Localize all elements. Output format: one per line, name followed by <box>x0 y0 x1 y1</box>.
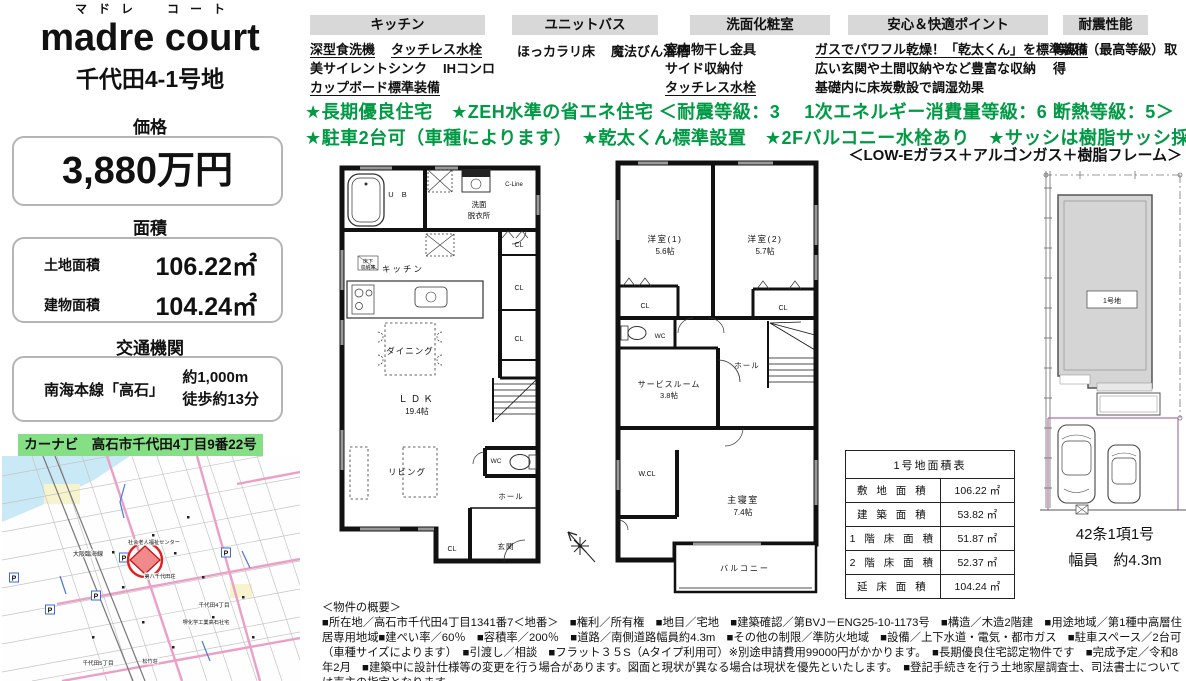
site-road-width: 幅員 約4.3m <box>1040 548 1186 574</box>
plan1-washroom-label: 洗面 <box>472 199 487 209</box>
parking-icon: P <box>94 594 99 601</box>
plan1-closet-label: CL <box>448 546 457 553</box>
floorplan-1f: U B 洗面 脱衣所 C-Line CL CL CL キッチン 床下 収納庫 Ｌ… <box>330 160 545 572</box>
plan2-room1-size: 5.6帖 <box>655 246 674 256</box>
row-name: 1 階 床 面 積 <box>846 527 941 551</box>
plan1-outer-wall <box>342 168 538 561</box>
land-area-row: 土地面積 106.22㎡ <box>14 239 281 283</box>
parking-icon: P <box>48 608 53 615</box>
plan1-washroom-label: 脱衣所 <box>468 210 491 220</box>
feature-item: 室内物干し金具 <box>665 40 756 59</box>
plan2-wc-label: WC <box>655 333 666 340</box>
area-heading: 面積 <box>0 214 300 239</box>
feature-item: 美サイレントシンク <box>310 59 427 78</box>
map-label: 堺化学工業高石社宅 <box>183 618 230 626</box>
plan2-closet-label: CL <box>641 303 650 310</box>
overview-body: ■所在地／高石市千代田4丁目1341番7＜地番＞ ■権利／所有権 ■地目／宅地 … <box>322 616 1182 681</box>
map-label-district: 千代田4丁目 <box>198 601 229 609</box>
feature-item: タッチレス水栓 <box>665 78 756 97</box>
plan2-service-label: サービスルーム <box>638 380 701 389</box>
highlight-line-3: ＜LOW-Eガラス＋アルゴンガス＋樹脂フレーム＞ <box>800 144 1182 165</box>
feature-powder-items: 室内物干し金具 サイド収納付 タッチレス水栓 <box>665 40 756 97</box>
site-lot-label: 1号地 <box>1103 296 1121 305</box>
feature-header-quake: 耐震性能 <box>1063 15 1148 35</box>
north-arrow-icon <box>550 515 610 580</box>
plan1-hall-label: ホール <box>498 492 524 501</box>
map-label-road: 大阪臨海線 <box>73 550 103 558</box>
feature-item: ガスでパワフル乾燥！「乾太くん」を標準装備 <box>815 40 1088 59</box>
row-value: 53.82 ㎡ <box>940 503 1014 527</box>
row-name: 建 築 面 積 <box>846 503 941 527</box>
property-overview: ＜物件の概要＞ ■所在地／高石市千代田4丁目1341番7＜地番＞ ■権利／所有権… <box>322 601 1182 681</box>
plan2-wcl-label: W.CL <box>638 471 655 478</box>
plan2-room2-size: 5.7帖 <box>755 246 774 256</box>
site-road-note: 42条1項1号 幅員 約4.3m <box>1040 522 1186 573</box>
plan1-cline-label: C-Line <box>505 182 523 188</box>
land-area-label: 土地面積 <box>44 255 100 275</box>
map-label: 社会老人福祉センター <box>128 538 180 546</box>
transport-walk: 徒歩約13分 <box>182 391 259 408</box>
plan2-master-label: 主寝室 <box>727 494 759 505</box>
location-map: P P P P P 大阪臨海線 社会老人福祉センター 第八千代田荘 堺化学工業高… <box>2 456 300 681</box>
table-row: 建 築 面 積53.82 ㎡ <box>846 503 1015 527</box>
flyer-page: マドレ コート madre court 千代田4-1号地 価格 3,880万円 … <box>0 0 1186 681</box>
plan2-closet-label: CL <box>779 305 788 312</box>
feature-header-powder: 洗面化粧室 <box>690 15 830 35</box>
site-road-article: 42条1項1号 <box>1040 522 1186 548</box>
row-name: 敷 地 面 積 <box>846 479 941 503</box>
building-area-label: 建物面積 <box>44 295 100 315</box>
feature-item: 等級3（最高等級）取得 <box>1053 40 1186 78</box>
row-value: 52.37 ㎡ <box>940 551 1014 575</box>
plan2-master-size: 7.4帖 <box>733 507 752 517</box>
logo-text: madre court <box>0 17 300 60</box>
plan1-entrance-label: 玄関 <box>498 541 515 551</box>
overview-title: ＜物件の概要＞ <box>322 601 1182 616</box>
feature-comfort-items: ガスでパワフル乾燥！「乾太くん」を標準装備 広い玄関や土間収納やなど豊富な収納 … <box>815 40 1088 97</box>
feature-item: サイド収納付 <box>665 59 743 78</box>
plan2-balcony-label: バルコニー <box>720 564 770 573</box>
row-value: 51.87 ㎡ <box>940 527 1014 551</box>
plan1-ldk-label: ＬＤＫ <box>398 394 436 405</box>
parking-icon: P <box>224 551 229 558</box>
feature-item: 広い玄関や土間収納やなど豊富な収納 <box>815 59 1036 78</box>
site-cars <box>1058 425 1140 503</box>
logo-furigana: マドレ コート <box>0 0 300 17</box>
feature-quake-items: 等級3（最高等級）取得 <box>1053 40 1186 78</box>
feature-item: IHコンロ <box>443 59 495 78</box>
lot-title: 千代田4-1号地 <box>0 60 300 94</box>
parking-icon: P <box>12 576 17 583</box>
area-table: 1号地面積表 敷 地 面 積106.22 ㎡ 建 築 面 積53.82 ㎡ 1 … <box>845 450 1015 599</box>
map-label-district: 千代田5丁目 <box>82 659 113 667</box>
map-label: 第八千代田荘 <box>144 572 175 580</box>
feature-item: 基礎内に床炭敷設で調湿効果 <box>815 78 984 97</box>
land-area-value: 106.22㎡ <box>156 247 257 283</box>
site-plan: 1号地 <box>1040 163 1186 515</box>
feature-bath-items: ほっカラリ床魔法びん浴槽 <box>517 42 689 61</box>
transport-box: 南海本線「高石」 約1,000m 徒歩約13分 <box>12 356 283 422</box>
table-row: 2 階 床 面 積52.37 ㎡ <box>846 551 1015 575</box>
building-area-value: 104.24㎡ <box>156 287 257 323</box>
feature-header-comfort: 安心＆快適ポイント <box>848 15 1048 35</box>
feature-header-bath: ユニットバス <box>512 15 658 35</box>
site-porch <box>1097 393 1160 415</box>
plan1-closet-label: CL <box>515 242 524 249</box>
price-heading: 価格 <box>0 113 300 138</box>
plan1-wc-label: WC <box>491 458 502 465</box>
highlight-line-1: ★長期優良住宅 ★ZEH水準の省エネ住宅 ＜耐震等級：3 1次エネルギー消費量等… <box>305 98 1174 124</box>
table-row: 1 階 床 面 積51.87 ㎡ <box>846 527 1015 551</box>
carnavi-bar: カーナビ 高石市千代田4丁目9番22号付近 <box>18 434 263 456</box>
plan2-room1-label: 洋室(1) <box>648 234 683 244</box>
row-value: 106.22 ㎡ <box>940 479 1014 503</box>
feature-kitchen-items: 深型食洗機タッチレス水栓 美サイレントシンクIHコンロ カップボード標準装備 <box>310 40 495 97</box>
plan1-closet-label: CL <box>515 336 524 343</box>
plan2-room2-label: 洋室(2) <box>748 234 783 244</box>
feature-header-kitchen: キッチン <box>310 15 485 35</box>
price-box: 3,880万円 <box>12 136 283 206</box>
parking-icon: P <box>122 556 127 563</box>
feature-item: 深型食洗機 <box>310 40 375 59</box>
feature-item: タッチレス水栓 <box>391 40 482 59</box>
area-table-title: 1号地面積表 <box>846 451 1015 479</box>
floorplan-2f: 洋室(1) 5.6帖 洋室(2) 5.7帖 CL CL WC ホール サービスル… <box>613 160 828 600</box>
feature-item: カップボード標準装備 <box>310 78 440 97</box>
transport-distance: 約1,000m <box>182 369 248 386</box>
plan1-bath-label: U B <box>388 190 410 199</box>
plan1-underfloor-label: 床下 <box>363 258 373 265</box>
map-label: 松竹荘 <box>142 657 158 665</box>
price-value: 3,880万円 <box>14 138 281 204</box>
plan1-ldk-size: 19.4帖 <box>405 406 429 416</box>
row-name: 延 床 面 積 <box>846 575 941 599</box>
transport-line: 南海本線「高石」 <box>44 379 164 400</box>
plan1-living-label: リビング <box>388 467 426 477</box>
row-value: 104.24 ㎡ <box>940 575 1014 599</box>
plan1-dining-label: ダイニング <box>386 346 434 356</box>
table-row: 敷 地 面 積106.22 ㎡ <box>846 479 1015 503</box>
plan1-closet-label: CL <box>515 285 524 292</box>
feature-item: ほっカラリ床 <box>517 42 595 61</box>
area-box: 土地面積 106.22㎡ 建物面積 104.24㎡ <box>12 237 283 323</box>
plan2-hall-label: ホール <box>734 361 760 370</box>
building-area-row: 建物面積 104.24㎡ <box>14 283 281 323</box>
plan2-service-size: 3.8帖 <box>660 390 678 400</box>
plan1-underfloor-label: 収納庫 <box>360 264 375 271</box>
table-row: 延 床 面 積104.24 ㎡ <box>846 575 1015 599</box>
row-name: 2 階 床 面 積 <box>846 551 941 575</box>
plan1-kitchen-label: キッチン <box>382 264 424 274</box>
